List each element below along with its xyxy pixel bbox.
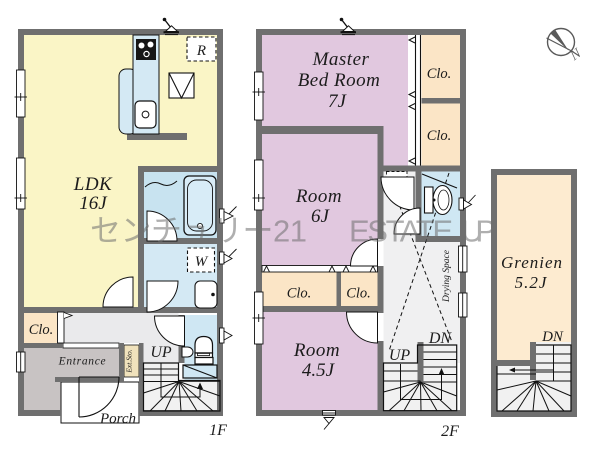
svg-text:Clo.: Clo.	[287, 286, 312, 302]
svg-text:ESTATE: ESTATE	[349, 214, 453, 249]
svg-text:Clo.: Clo.	[346, 286, 371, 302]
svg-text:UP: UP	[150, 344, 172, 361]
svg-text:7J: 7J	[328, 91, 348, 112]
svg-text:Clo.: Clo.	[427, 66, 452, 82]
svg-text:16J: 16J	[79, 193, 108, 214]
svg-text:Ext.Sto.: Ext.Sto.	[125, 349, 134, 373]
svg-text:6J: 6J	[311, 206, 331, 227]
svg-text:4.5J: 4.5J	[302, 360, 336, 381]
svg-text:Porch: Porch	[99, 411, 136, 427]
svg-text:Master: Master	[312, 49, 370, 70]
svg-text:Entrance: Entrance	[58, 356, 107, 368]
svg-text:UP: UP	[389, 347, 411, 364]
svg-text:DN: DN	[428, 330, 453, 347]
svg-text:Clo.: Clo.	[29, 322, 54, 338]
svg-text:W: W	[195, 254, 209, 270]
svg-text:Drying Space: Drying Space	[442, 250, 452, 303]
svg-text:Clo.: Clo.	[427, 128, 452, 144]
svg-text:センチュリー21: センチュリー21	[90, 214, 307, 249]
svg-text:Grenien: Grenien	[501, 253, 563, 272]
svg-text:1F: 1F	[209, 422, 227, 439]
svg-text:UP: UP	[461, 214, 496, 249]
svg-text:LDK: LDK	[73, 174, 113, 195]
svg-text:5.2J: 5.2J	[515, 273, 548, 292]
svg-text:R: R	[196, 43, 206, 59]
svg-text:DN: DN	[541, 329, 564, 345]
svg-text:Room: Room	[295, 186, 342, 207]
svg-text:2F: 2F	[441, 423, 459, 440]
svg-text:Room: Room	[293, 340, 340, 361]
svg-text:Bed Room: Bed Room	[298, 70, 381, 91]
